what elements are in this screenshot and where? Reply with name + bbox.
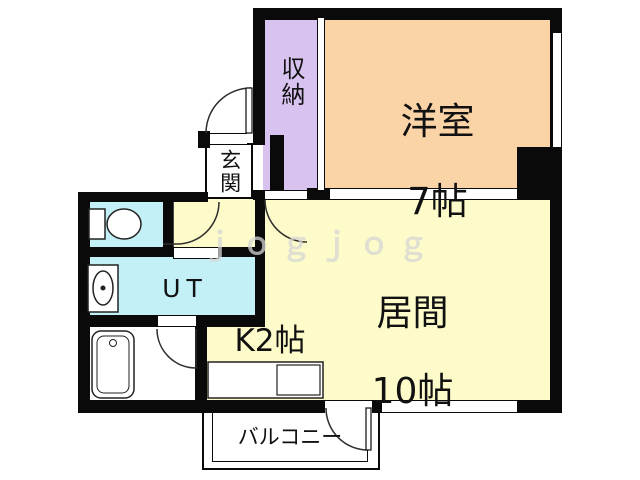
wall-bottom-right xyxy=(517,400,562,413)
label-genkan: 玄関 xyxy=(218,148,241,196)
entrance-door-leaf xyxy=(246,88,252,133)
utility-label: UT xyxy=(162,274,208,303)
room-bath xyxy=(90,327,195,403)
kitchen-label: K2帖 xyxy=(234,323,305,359)
closet-door-opening xyxy=(265,190,307,200)
wall-ut-bottom-a xyxy=(78,315,158,327)
living-room-name: 居間 xyxy=(376,293,448,334)
entrance-door-opening xyxy=(210,133,247,145)
watermark-text: ｊｏｇｊｏｇ xyxy=(165,219,475,263)
western-room-size: 7帖 xyxy=(407,180,468,223)
bath-door-opening xyxy=(158,315,196,327)
wall-right-lower xyxy=(550,200,562,413)
wall-left xyxy=(78,192,90,413)
label-western-room: 洋室 7帖 xyxy=(350,62,525,222)
label-living-room: 居間 10帖 xyxy=(330,256,495,412)
wall-bottom-left xyxy=(78,400,325,413)
label-utility: UT xyxy=(150,275,220,302)
wall-right-upper xyxy=(550,20,562,33)
closet-sliding-door xyxy=(317,18,325,190)
wall-entry-post xyxy=(198,131,210,148)
western-room-window xyxy=(552,33,562,147)
room-toilet xyxy=(90,202,163,247)
wall-toilet-top xyxy=(78,192,208,202)
wall-bath-kitchen xyxy=(195,327,207,403)
floor-plan-canvas: 洋室 7帖 居間 10帖 K2帖 収納 玄関 UT バルコニー ｊｏｇｊｏｇ xyxy=(0,0,640,480)
wall-genkan-right xyxy=(253,8,265,145)
closet-label: 収納 xyxy=(277,56,305,108)
genkan-label: 玄関 xyxy=(218,149,242,195)
entrance-door-arc xyxy=(206,88,251,133)
living-room-size: 10帖 xyxy=(372,371,454,412)
western-room-name: 洋室 xyxy=(401,100,475,143)
wall-ut-top-a xyxy=(88,247,175,257)
balcony-label: バルコニー xyxy=(238,425,343,449)
label-kitchen: K2帖 xyxy=(207,325,333,358)
wall-closet-divider xyxy=(270,135,284,190)
label-balcony: バルコニー xyxy=(212,426,368,449)
label-closet: 収納 xyxy=(277,50,303,114)
wall-top xyxy=(253,8,562,20)
